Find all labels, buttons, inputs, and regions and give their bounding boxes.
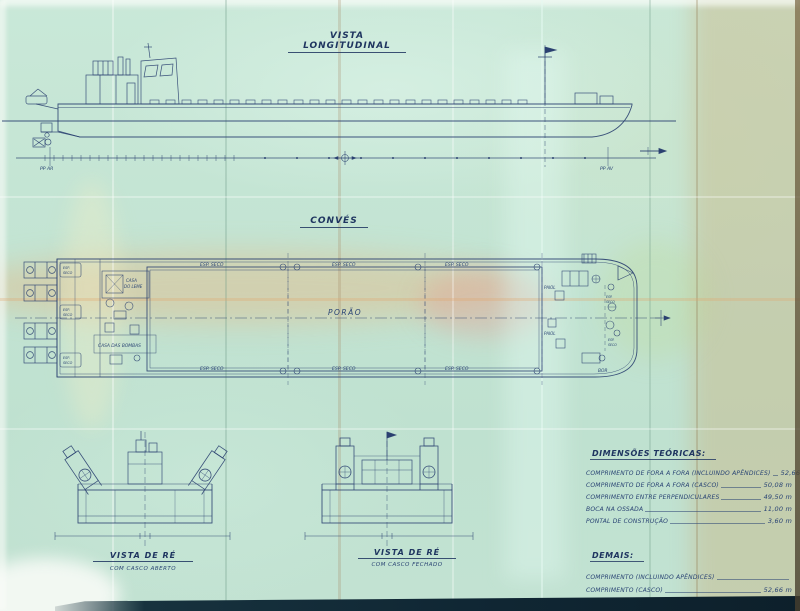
dimension-value: 3,60 m bbox=[768, 517, 792, 525]
rudder-room-label: DO LEME bbox=[124, 284, 143, 289]
stern-view-closed-subtitle-text: COM CASCO FECHADO bbox=[371, 562, 442, 568]
stern-open-deckhouse bbox=[128, 431, 162, 484]
dimension-row: COMPRIMENTO DE FORA A FORA (INCLUINDO AP… bbox=[586, 465, 792, 477]
dimension-row: PONTAL DE CONSTRUÇÃO 3,60 m bbox=[586, 513, 792, 525]
stern-view-closed-subtitle: COM CASCO FECHADO bbox=[352, 562, 462, 568]
mast bbox=[538, 47, 556, 104]
dry-space-label: ESP. SECO bbox=[445, 366, 469, 372]
stern-winches bbox=[24, 262, 57, 363]
leader-line bbox=[721, 499, 760, 500]
dimension-row: COMPRIMENTO (CASCO) 52,66 m bbox=[586, 581, 792, 594]
dry-space-box-label: SECO bbox=[63, 361, 73, 365]
leader-line bbox=[721, 487, 761, 488]
dimension-label: BOCA NA OSSADA bbox=[586, 506, 643, 513]
dimension-value: 52,66 m bbox=[764, 586, 792, 594]
dimension-value: 50,08 m bbox=[764, 481, 792, 489]
dimension-label: COMPRIMENTO DE FORA A FORA (INCLUINDO AP… bbox=[586, 470, 771, 477]
dimensions-table-secondary-title: DEMAIS: bbox=[590, 551, 644, 562]
stern-view-closed-title: VISTA DE RÉ bbox=[358, 548, 456, 559]
deck-vents bbox=[280, 264, 540, 374]
stern-open-pod-port bbox=[60, 444, 101, 494]
dry-space-box-label: ESP. bbox=[63, 356, 70, 360]
dry-space-box-label: ESP. bbox=[606, 295, 613, 299]
dimension-row: COMPRIMENTO (INCLUINDO APÊNDICES) bbox=[586, 567, 792, 581]
dimension-row: COMPRIMENTO ENTRE PERPENDICULARES 49,50 … bbox=[586, 489, 792, 501]
dry-space-box-label: SECO bbox=[63, 313, 73, 317]
dimension-label: PONTAL DE CONSTRUÇÃO bbox=[586, 518, 668, 525]
dimension-label: COMPRIMENTO (CASCO) bbox=[586, 587, 663, 594]
right-dark-edge bbox=[795, 0, 800, 611]
dry-space-box-label: ESP. bbox=[63, 266, 70, 270]
dry-space-box-label: SECO bbox=[606, 300, 615, 304]
station-baseline bbox=[16, 147, 656, 166]
stern-closed-pod-starboard bbox=[420, 438, 438, 490]
dry-space-label: ESP. SECO bbox=[332, 366, 356, 372]
dry-space-label: ESP. SECO bbox=[200, 262, 224, 268]
stern-view-open-title: VISTA DE RÉ bbox=[93, 551, 193, 562]
stain-top-white bbox=[0, 0, 800, 6]
deck-coamings bbox=[150, 100, 527, 104]
stern-view-open-subtitle: COM CASCO ABERTO bbox=[90, 566, 196, 572]
superstructure bbox=[26, 43, 179, 109]
deck-plan-drawing: PORÃO ESP. SECO ESP. SECO ESP. SECO ESP.… bbox=[10, 245, 675, 395]
dimension-row: COMPRIMENTO DE FORA A FORA (CASCO) 50,08… bbox=[586, 477, 792, 489]
stern-closed-pod-port bbox=[336, 438, 354, 490]
leader-line bbox=[773, 475, 778, 476]
bow-centerline-mark bbox=[652, 310, 670, 326]
rudder-room-label: CASA bbox=[126, 278, 137, 283]
bow-compartments bbox=[548, 254, 633, 363]
stern-view-open-title-text: VISTA DE RÉ bbox=[110, 551, 176, 560]
dimensions-table-main-title: DIMENSÕES TEÓRICAS: bbox=[590, 449, 716, 460]
leader-line bbox=[665, 592, 761, 593]
stern-closed-baseline bbox=[305, 532, 473, 540]
leader-line bbox=[717, 579, 789, 580]
stern-view-open-subtitle-text: COM CASCO ABERTO bbox=[110, 566, 176, 572]
deck-view-title: CONVÉS bbox=[300, 216, 368, 228]
stern-view-closed-title-text: VISTA DE RÉ bbox=[374, 548, 440, 557]
dimension-label: COMPRIMENTO DE FORA A FORA (CASCO) bbox=[586, 482, 719, 489]
storeroom-label: PAIOL bbox=[544, 285, 556, 290]
stern-open-baseline bbox=[55, 532, 230, 540]
blueprint-sheet: VISTA LONGITUDINAL bbox=[0, 0, 800, 611]
stern-closed-mast bbox=[387, 432, 396, 460]
hold-label: PORÃO bbox=[328, 308, 362, 317]
dimension-label: COMPRIMENTO (INCLUINDO APÊNDICES) bbox=[586, 574, 715, 581]
dry-space-label: ESP. SECO bbox=[445, 262, 469, 268]
stern-view-closed-drawing bbox=[300, 428, 480, 550]
dimension-value: 49,50 m bbox=[764, 493, 792, 501]
dry-space-box-label: ESP. bbox=[63, 308, 70, 312]
crease-horizontal bbox=[0, 196, 800, 198]
dry-space-box-label: ESP. bbox=[608, 338, 615, 342]
cargo-hold bbox=[147, 267, 542, 371]
label-pp-av: PP AV bbox=[600, 166, 614, 172]
leader-line bbox=[670, 523, 765, 524]
deck-section-lines bbox=[288, 253, 542, 385]
dry-space-box-label: SECO bbox=[63, 271, 73, 275]
dimensions-table-main: DIMENSÕES TEÓRICAS: COMPRIMENTO DE FORA … bbox=[586, 441, 792, 525]
dry-space-label: ESP. SECO bbox=[332, 262, 356, 268]
leader-line bbox=[645, 511, 760, 512]
label-pp-ar: PP AR bbox=[40, 166, 53, 172]
dimension-label: COMPRIMENTO ENTRE PERPENDICULARES bbox=[586, 494, 719, 501]
dimension-value: 11,00 m bbox=[764, 505, 792, 513]
dry-space-label: ESP. SECO bbox=[200, 366, 224, 372]
dry-space-box-label: SECO bbox=[608, 343, 617, 347]
stern-open-pod-starboard bbox=[188, 444, 229, 494]
stern-fitting bbox=[33, 138, 51, 147]
bow-arrow-mark bbox=[640, 147, 666, 155]
pump-room-label: CASA DAS BOMBAS bbox=[98, 343, 141, 349]
storeroom-label: PAIOL bbox=[544, 331, 556, 336]
bow-deckhouses bbox=[575, 93, 613, 104]
bottom-dark-edge bbox=[55, 596, 800, 611]
deck-view-title-text: CONVÉS bbox=[310, 216, 357, 226]
starboard-label: BOR bbox=[598, 368, 608, 374]
dimension-row: BOCA NA OSSADA 11,00 m bbox=[586, 501, 792, 513]
stern-view-open-drawing bbox=[45, 428, 240, 550]
center-mark bbox=[334, 151, 356, 165]
longitudinal-view-drawing: PP AR PP AV bbox=[0, 35, 690, 185]
